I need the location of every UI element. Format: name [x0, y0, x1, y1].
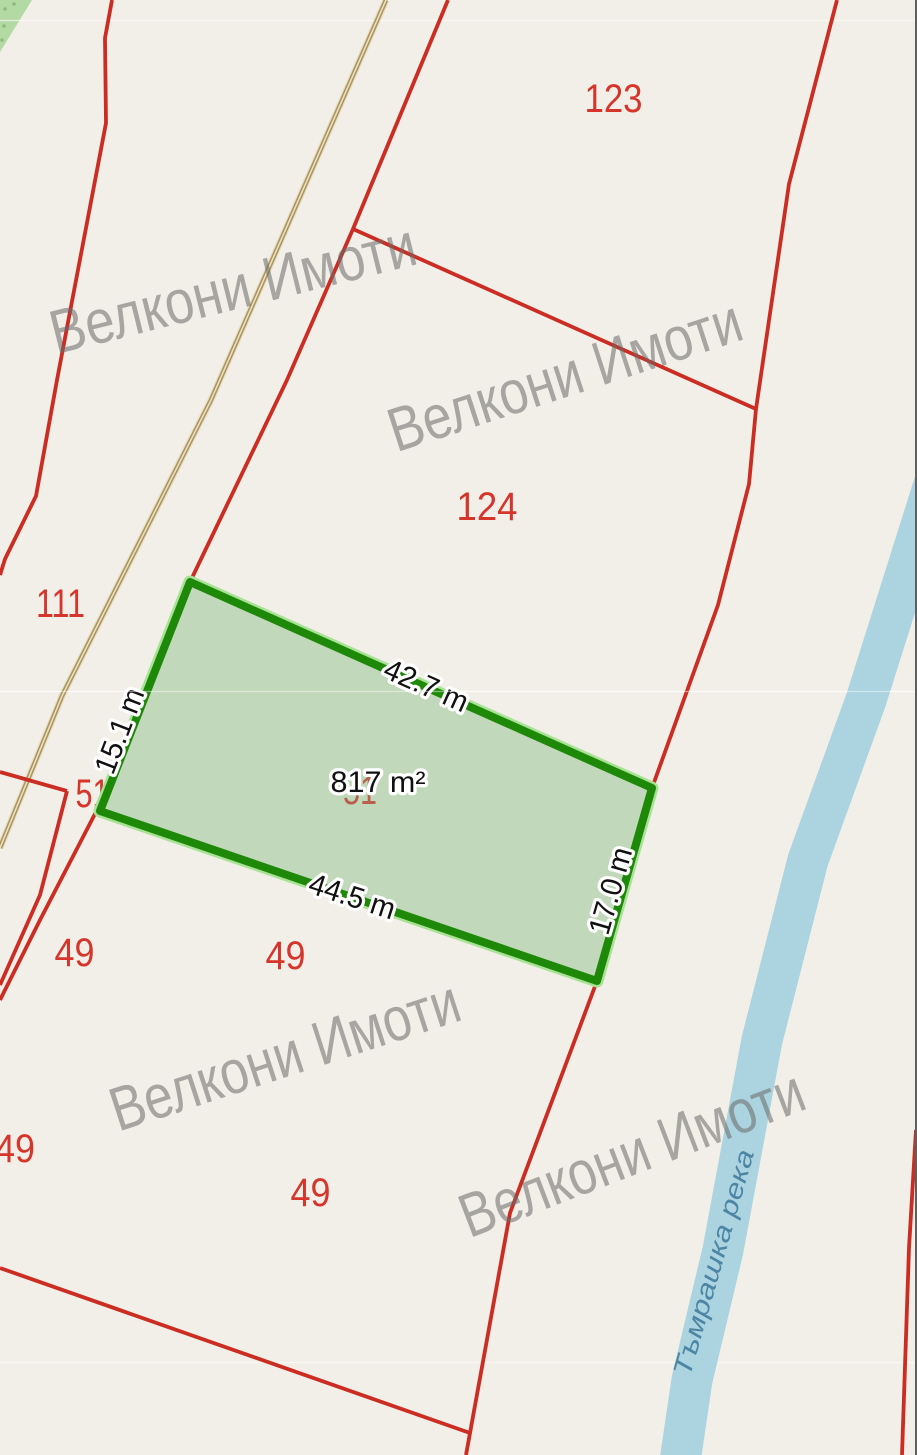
svg-text:817 m²: 817 m²: [331, 766, 426, 799]
svg-text:49: 49: [266, 934, 306, 978]
svg-text:111: 111: [36, 582, 85, 626]
svg-text:49: 49: [0, 1127, 35, 1171]
svg-text:49: 49: [55, 931, 95, 975]
svg-text:124: 124: [457, 485, 518, 529]
svg-text:123: 123: [585, 77, 643, 121]
svg-text:49: 49: [291, 1171, 331, 1215]
